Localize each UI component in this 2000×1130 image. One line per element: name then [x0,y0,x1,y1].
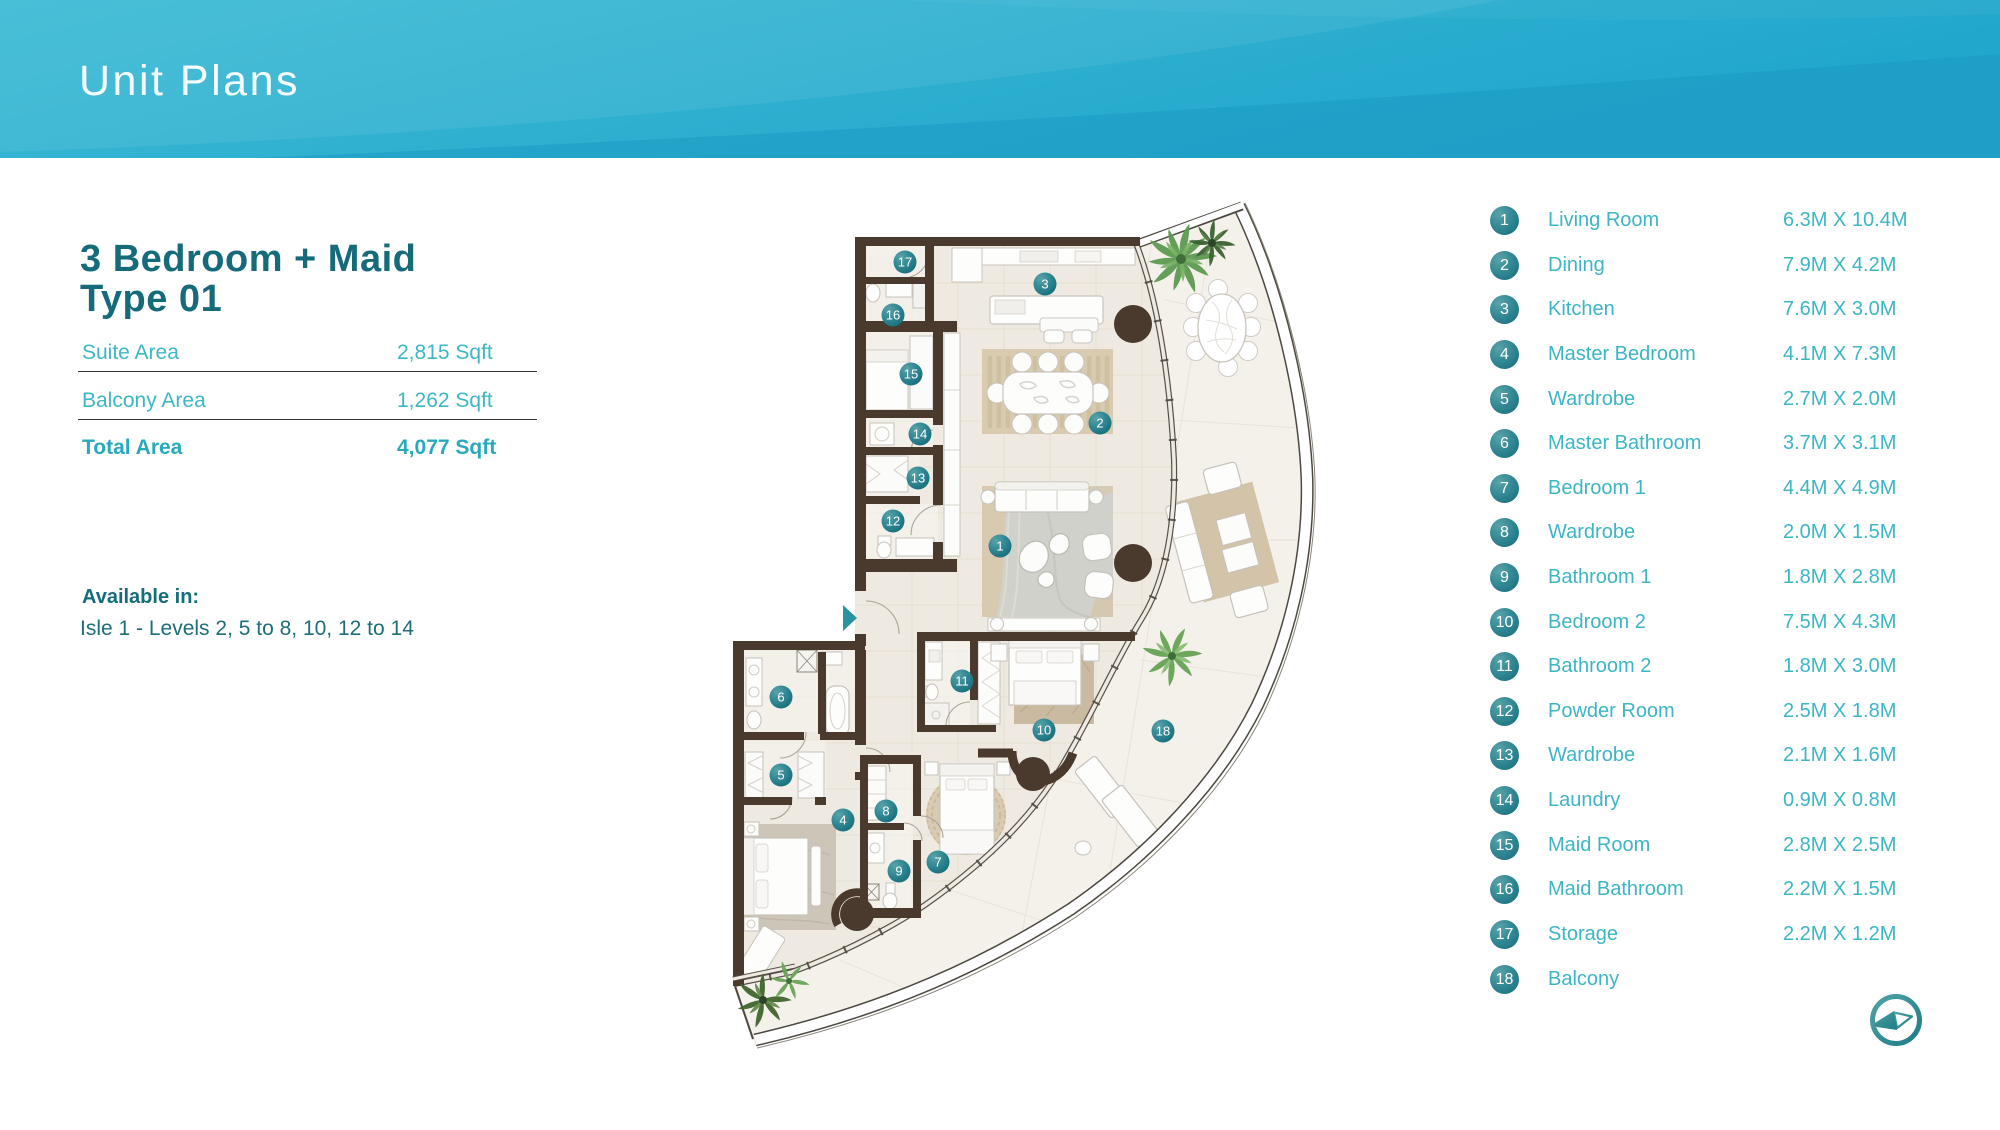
svg-text:2: 2 [1096,416,1103,431]
svg-text:10: 10 [1037,723,1051,738]
svg-text:15: 15 [904,367,918,382]
svg-text:9: 9 [895,864,902,879]
svg-text:14: 14 [913,427,927,442]
svg-text:12: 12 [886,514,900,529]
svg-text:17: 17 [898,255,912,270]
svg-text:11: 11 [955,674,969,689]
svg-text:5: 5 [777,768,784,783]
svg-text:6: 6 [777,690,784,705]
svg-text:18: 18 [1156,724,1170,739]
svg-text:4: 4 [839,813,846,828]
svg-text:13: 13 [911,471,925,486]
svg-text:1: 1 [996,539,1003,554]
svg-text:7: 7 [934,855,941,870]
svg-text:8: 8 [882,804,889,819]
svg-text:16: 16 [886,308,900,323]
svg-text:3: 3 [1041,277,1048,292]
